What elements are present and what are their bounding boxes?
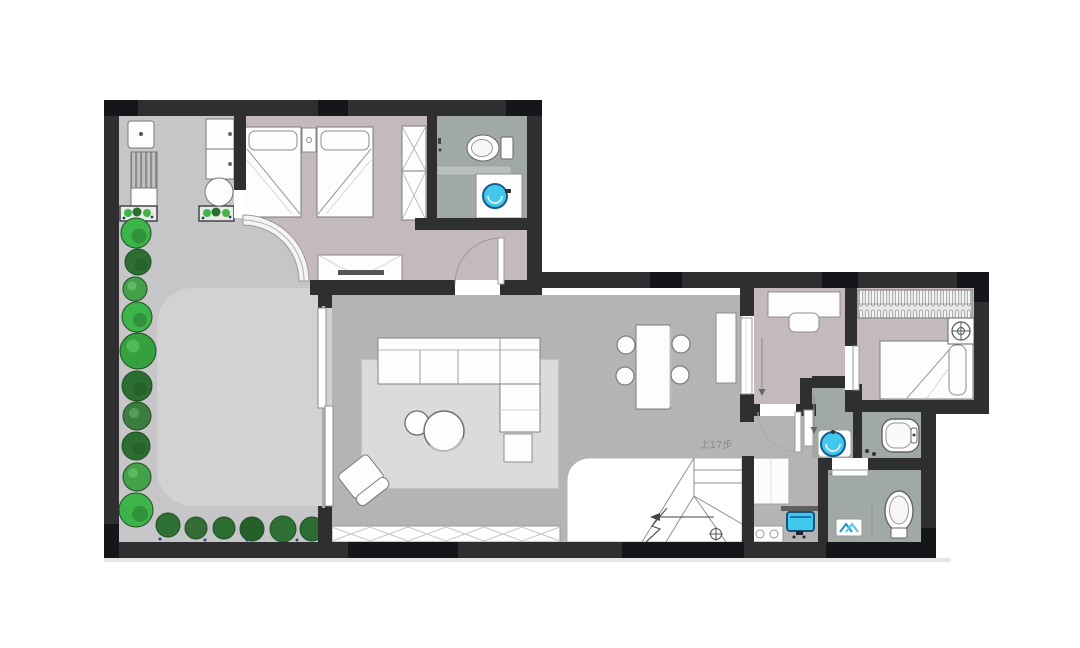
door-leaf	[795, 412, 801, 452]
faucet-icon	[505, 189, 511, 193]
dining-chair	[616, 367, 634, 385]
wall	[818, 458, 828, 542]
floor-plan-canvas: 上17步	[0, 0, 1080, 648]
tree	[120, 333, 156, 369]
bush	[185, 517, 207, 539]
tv-console	[716, 313, 736, 383]
counter-two-basins	[752, 526, 783, 542]
chaise	[500, 384, 540, 432]
nightstand	[302, 128, 316, 152]
round-stool	[205, 178, 233, 206]
study-pocket-door	[741, 318, 752, 394]
pillar	[826, 542, 922, 558]
dresser	[206, 119, 234, 179]
tree	[123, 463, 151, 491]
tree	[123, 277, 147, 301]
bathtub	[882, 419, 919, 452]
pillar	[348, 542, 458, 558]
tap-handle-icon	[872, 452, 876, 456]
tap-handle-icon	[865, 449, 869, 453]
wall	[742, 456, 754, 542]
tree	[122, 432, 150, 460]
pillar	[974, 272, 989, 302]
vanity-basin	[818, 430, 851, 457]
lounge-chair	[131, 152, 157, 206]
pillar	[506, 100, 542, 116]
wall	[104, 100, 119, 558]
door-leaf	[832, 470, 868, 476]
door-leaf	[498, 238, 504, 284]
exhaust-fan-icon	[948, 318, 974, 344]
pillar	[104, 100, 138, 116]
tree	[122, 371, 152, 401]
wall	[818, 458, 832, 470]
tree	[122, 302, 152, 332]
bedroom1-corridor-floor	[415, 230, 542, 280]
bush	[270, 516, 296, 542]
floor-drain	[836, 519, 862, 536]
wall	[415, 218, 542, 230]
wall	[318, 280, 332, 308]
pillow	[949, 345, 966, 395]
double-bed	[880, 341, 973, 399]
faucet-icon	[796, 531, 803, 535]
wall	[800, 378, 812, 410]
bedroom2-door	[845, 346, 859, 390]
shower-basin	[476, 174, 522, 218]
toilet	[467, 135, 513, 161]
door-leaf	[853, 346, 859, 390]
pillar	[921, 528, 936, 558]
tree	[119, 493, 153, 527]
bush	[156, 513, 180, 537]
door-opening	[234, 190, 246, 218]
wall	[527, 272, 989, 288]
faucet-icon	[831, 430, 835, 434]
dining-chair	[617, 336, 635, 354]
hanging-clothes-wardrobe	[858, 290, 972, 318]
wall	[427, 116, 437, 218]
tv-icon	[338, 270, 384, 275]
pillow	[321, 131, 369, 150]
planter-box	[199, 206, 234, 221]
pillar	[622, 542, 744, 558]
wall	[868, 458, 921, 470]
tree	[121, 218, 151, 248]
pillar	[318, 100, 348, 116]
wall	[740, 288, 754, 316]
laundry-sink	[787, 512, 814, 531]
twin-bed	[317, 127, 373, 217]
wall	[845, 284, 857, 346]
floor-plan: 上17步	[0, 0, 1080, 648]
garden-path	[157, 288, 332, 506]
shelf	[781, 506, 819, 511]
dining-table	[636, 325, 670, 409]
wall	[104, 542, 936, 558]
pillow	[249, 131, 297, 150]
wall	[754, 404, 760, 416]
wall	[500, 280, 542, 295]
pillar	[822, 272, 858, 288]
pillar	[650, 272, 682, 288]
desk-chair	[789, 313, 819, 332]
wall-shadow	[104, 558, 951, 562]
wall	[234, 116, 246, 190]
wall	[845, 400, 921, 412]
tree	[123, 402, 151, 430]
bush	[213, 517, 235, 539]
side-table	[504, 434, 532, 462]
stairs-direction-label: 上17步	[700, 439, 733, 451]
wall	[740, 394, 754, 422]
wall	[318, 506, 332, 542]
x-wardrobe	[402, 126, 426, 220]
tree	[125, 249, 151, 275]
dining-chair	[671, 366, 689, 384]
bush	[240, 517, 264, 541]
tv-console	[318, 255, 402, 281]
window-seat	[332, 526, 560, 542]
twin-bed	[245, 127, 301, 217]
dining-chair	[672, 335, 690, 353]
wall	[527, 100, 542, 286]
pillar	[104, 524, 119, 558]
